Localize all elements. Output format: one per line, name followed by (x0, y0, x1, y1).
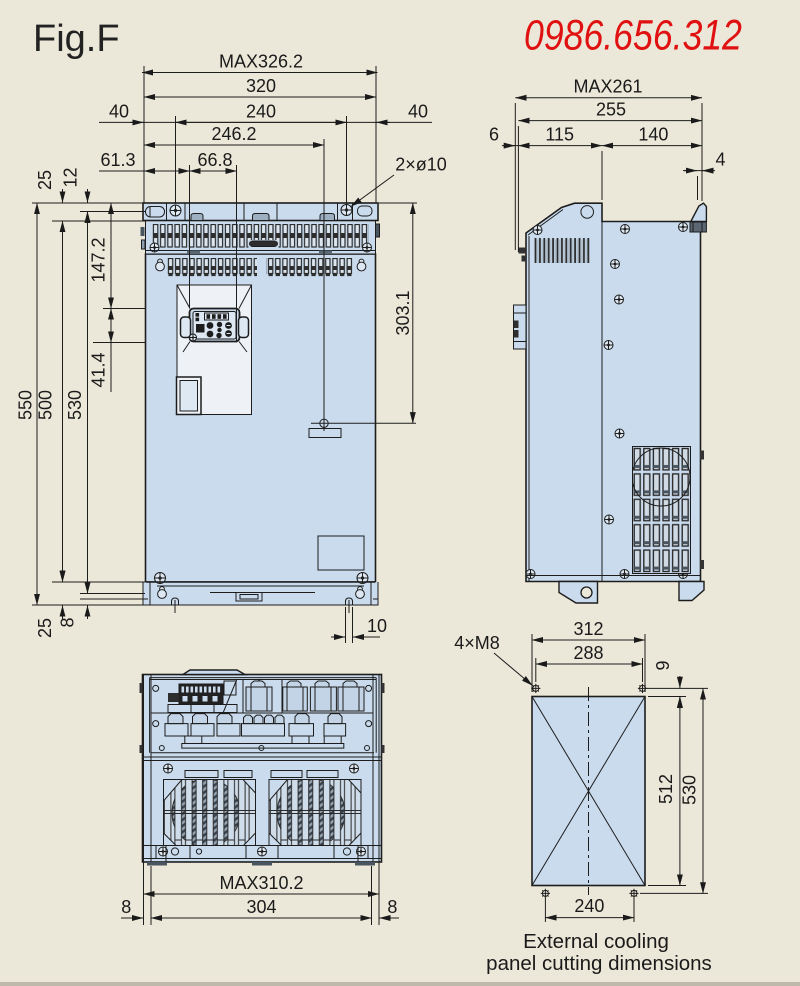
svg-text:115: 115 (545, 125, 574, 145)
svg-text:2×ø10: 2×ø10 (395, 155, 447, 175)
svg-text:40: 40 (408, 101, 428, 121)
svg-text:41.4: 41.4 (89, 352, 109, 387)
svg-text:4: 4 (715, 150, 725, 170)
svg-text:312: 312 (573, 619, 603, 639)
svg-text:MAX261: MAX261 (573, 76, 642, 96)
svg-text:530: 530 (65, 390, 85, 420)
svg-text:6: 6 (489, 125, 499, 145)
svg-text:12: 12 (61, 167, 81, 187)
svg-text:panel cutting dimensions: panel cutting dimensions (486, 952, 712, 975)
svg-text:8: 8 (387, 897, 397, 917)
svg-text:Fig.F: Fig.F (33, 18, 120, 60)
svg-text:25: 25 (35, 618, 55, 638)
svg-text:320: 320 (246, 76, 276, 96)
svg-text:25: 25 (35, 170, 55, 190)
svg-text:240: 240 (574, 896, 604, 916)
svg-text:8: 8 (58, 617, 78, 627)
svg-text:246.2: 246.2 (211, 124, 256, 144)
svg-text:500: 500 (36, 390, 56, 420)
svg-text:288: 288 (573, 643, 603, 663)
svg-text:303.1: 303.1 (393, 290, 413, 335)
svg-text:0986.656.312: 0986.656.312 (524, 12, 742, 60)
svg-text:66.8: 66.8 (197, 150, 232, 170)
svg-text:MAX310.2: MAX310.2 (219, 873, 303, 893)
svg-text:10: 10 (367, 616, 387, 636)
svg-text:61.3: 61.3 (100, 150, 135, 170)
svg-text:9: 9 (653, 660, 673, 670)
svg-text:512: 512 (656, 774, 676, 804)
svg-text:304: 304 (246, 897, 276, 917)
svg-text:140: 140 (638, 125, 668, 145)
svg-text:External cooling: External cooling (523, 930, 669, 953)
svg-text:147.2: 147.2 (89, 237, 109, 282)
svg-text:530: 530 (680, 775, 700, 805)
svg-text:8: 8 (121, 897, 131, 917)
svg-text:255: 255 (596, 99, 626, 119)
svg-text:550: 550 (16, 390, 36, 420)
svg-text:MAX326.2: MAX326.2 (219, 52, 303, 72)
svg-text:4×M8: 4×M8 (454, 633, 500, 653)
svg-text:240: 240 (246, 101, 276, 121)
svg-text:40: 40 (109, 101, 129, 121)
